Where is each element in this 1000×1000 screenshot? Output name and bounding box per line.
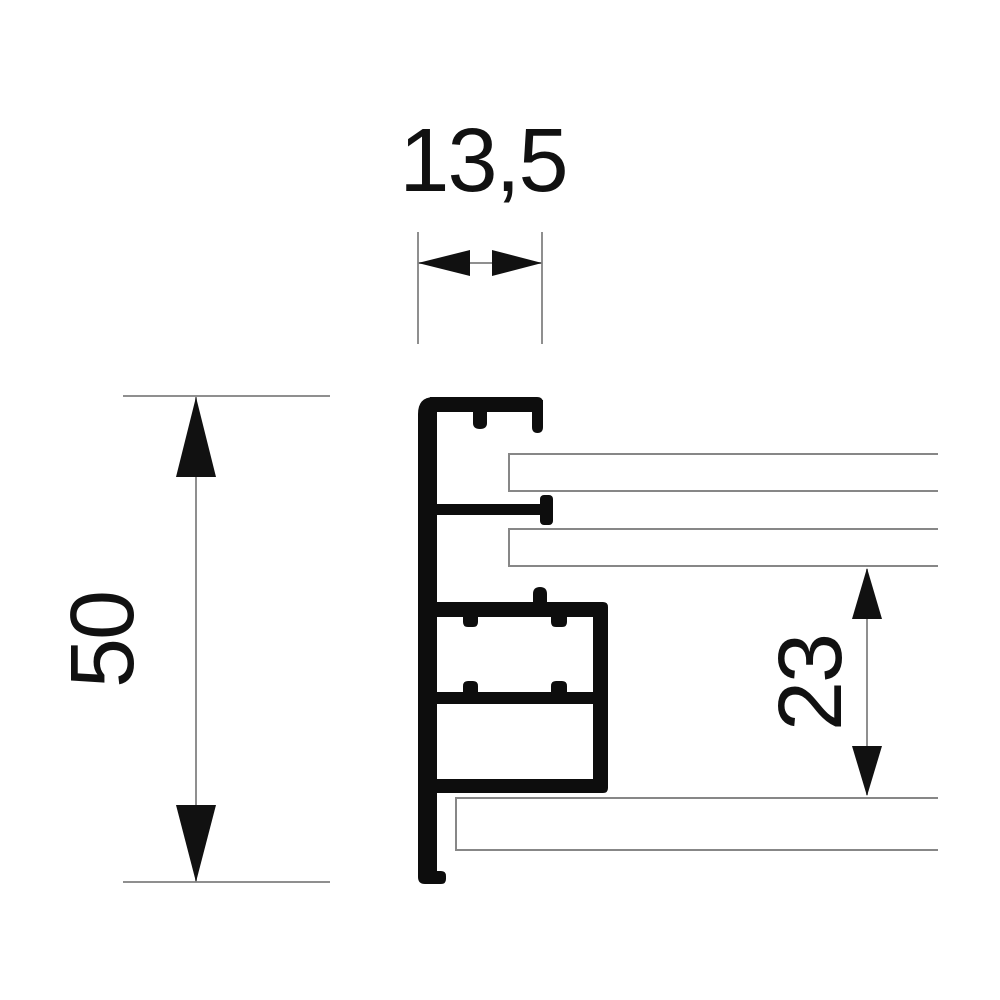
drawing-canvas: 13,5 50 23 — [0, 0, 1000, 1000]
upper-glass-panel — [509, 454, 938, 491]
profile-tab-hang-left — [463, 617, 478, 627]
profile-box-top — [428, 602, 593, 617]
height-arrow-top — [176, 397, 216, 477]
profile-top-stub — [532, 400, 543, 433]
offset-dimension-label: 23 — [766, 635, 856, 731]
profile-box-stub — [533, 587, 547, 602]
profile-wall — [418, 397, 437, 884]
offset-arrow-bottom — [852, 746, 882, 796]
profile-box-middle — [437, 692, 593, 704]
width-dimension — [418, 232, 542, 344]
profile-foot — [437, 871, 446, 884]
profile-t-cap — [540, 495, 553, 525]
height-dimension-label: 50 — [58, 592, 148, 688]
offset-arrow-top — [852, 568, 882, 619]
profile-top-bar — [430, 397, 543, 412]
width-arrow-left — [418, 250, 470, 276]
profile-box-right — [593, 602, 608, 793]
height-dimension — [123, 396, 330, 882]
profile-box-bottom — [428, 779, 593, 793]
height-arrow-bottom — [176, 805, 216, 882]
profile-tab-stand-right — [551, 681, 567, 692]
profile-tab-hang-right — [551, 617, 567, 627]
width-dimension-label: 13,5 — [399, 116, 566, 206]
width-arrow-right — [492, 250, 542, 276]
profile-t-arm — [437, 504, 541, 515]
base-panel — [456, 798, 938, 850]
profile-top-tab — [473, 412, 487, 429]
lower-glass-panel — [509, 529, 938, 566]
profile-tab-stand-left — [463, 681, 478, 692]
